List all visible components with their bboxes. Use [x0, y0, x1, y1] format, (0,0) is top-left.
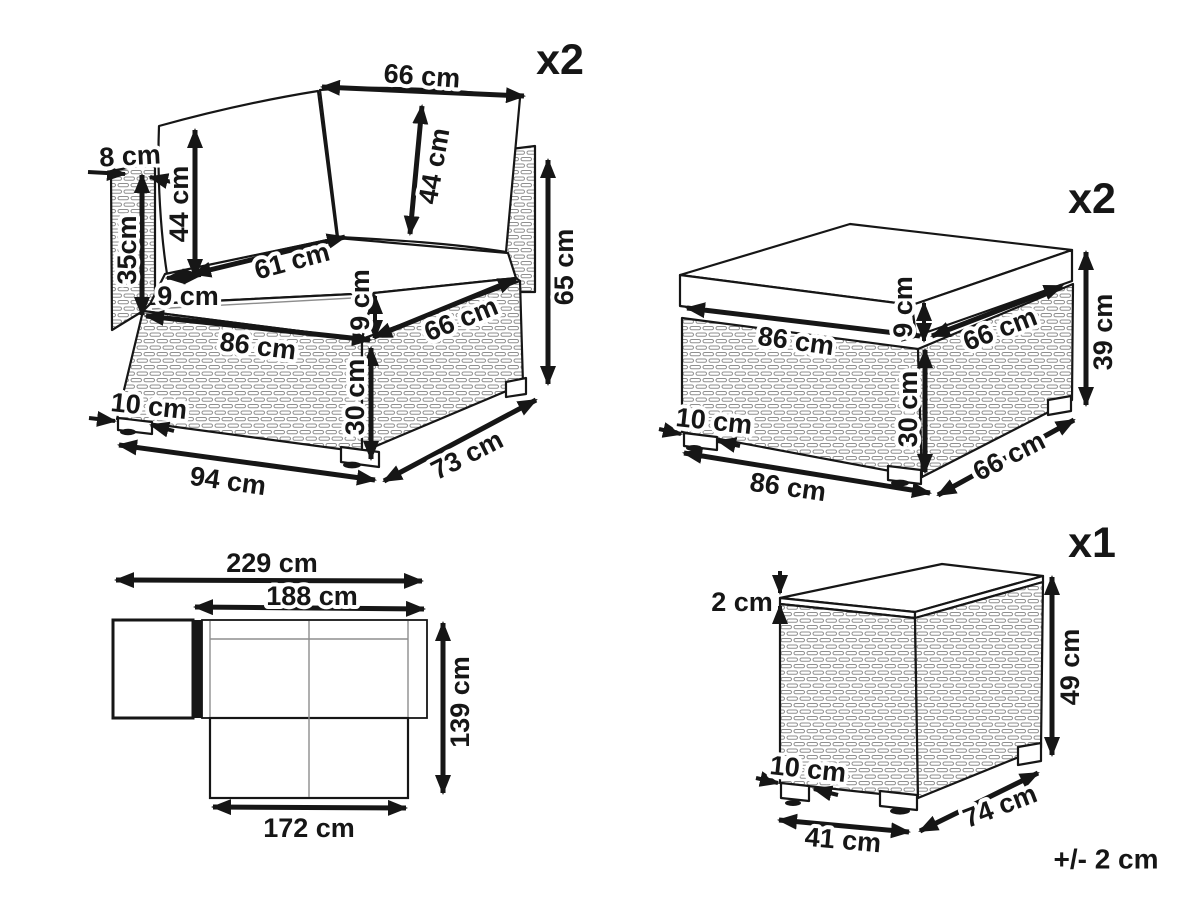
dim-sofa-overall-depth: 73 cm: [426, 424, 508, 485]
table-foot-left: [785, 800, 801, 806]
dim-sofa-seat-thickness: 9 cm: [345, 269, 375, 331]
dim-table-height: 49 cm: [1055, 629, 1085, 706]
plan-side-table: [113, 620, 193, 718]
diagram-svg: 66 cm 8 cm 35cm 44 cm 44 cm 61 cm 9 cm 9…: [0, 0, 1200, 900]
table-base-side: [915, 582, 1043, 798]
dim-ottoman-base-height: 30 cm: [893, 371, 923, 448]
dim-ottoman-total-height: 39 cm: [1088, 294, 1118, 371]
dim-plan-overall-depth: 139 cm: [445, 656, 475, 748]
ottoman-foot-left: [686, 445, 702, 451]
dim-ottoman-cushion-thickness: 9 cm: [888, 276, 918, 338]
tolerance-note: +/- 2 cm: [1053, 844, 1158, 875]
dimension-arrow: [89, 418, 115, 421]
dimension-arrow: [213, 807, 406, 808]
dim-sofa-side-clearance: 9 cm: [157, 281, 219, 311]
dim-plan-sofa-width: 188 cm: [266, 581, 358, 611]
plan-divider-bar: [193, 620, 202, 718]
dim-table-top-thickness: 2 cm: [711, 587, 773, 617]
table-leg-right: [1018, 743, 1041, 765]
dim-table-front-width: 41 cm: [804, 822, 883, 859]
floor-plan-diagram: 229 cm 188 cm 139 cm 172 cm: [113, 548, 475, 843]
dim-sofa-total-height: 65 cm: [549, 229, 579, 306]
ottoman-diagram: 86 cm 9 cm 66 cm 39 cm 30 cm 10 cm 86 cm…: [659, 175, 1118, 507]
dim-sofa-back-width: 66 cm: [383, 58, 461, 93]
dim-sofa-panel-above-seat: 35cm: [112, 215, 142, 284]
dim-plan-front-row-width: 172 cm: [263, 813, 355, 843]
dim-sofa-base-height: 30 cm: [340, 359, 370, 436]
table-leg-left: [781, 783, 809, 801]
floor-plan-artwork: [113, 620, 427, 798]
dim-sofa-overall-width: 94 cm: [188, 461, 268, 501]
sofa-leg-back-right: [506, 378, 526, 397]
sofa-foot-front-right: [343, 462, 361, 469]
corner-sofa-diagram: 66 cm 8 cm 35cm 44 cm 44 cm 61 cm 9 cm 9…: [88, 36, 584, 501]
ottoman-leg-right: [1048, 396, 1071, 415]
ottoman-quantity-badge: x2: [1068, 175, 1116, 223]
dimension-diagram-sheet: 66 cm 8 cm 35cm 44 cm 44 cm 61 cm 9 cm 9…: [0, 0, 1200, 900]
table-foot-front: [890, 807, 910, 814]
dim-sofa-left-cushion-height: 44 cm: [164, 166, 194, 243]
sofa-quantity-badge: x2: [536, 36, 584, 84]
dim-table-side-depth: 74 cm: [959, 778, 1041, 833]
dim-sofa-panel-thickness: 8 cm: [98, 139, 161, 172]
table-leg-front: [880, 791, 917, 810]
plan-sofa-body: [202, 620, 427, 718]
table-quantity-badge: x1: [1068, 519, 1116, 567]
side-table-diagram: 2 cm 49 cm 10 cm 41 cm 74 cm x1: [711, 519, 1116, 858]
dimension-arrow: [88, 172, 125, 174]
dim-plan-overall-width: 229 cm: [226, 548, 318, 578]
sofa-foot-front-left: [120, 429, 136, 435]
